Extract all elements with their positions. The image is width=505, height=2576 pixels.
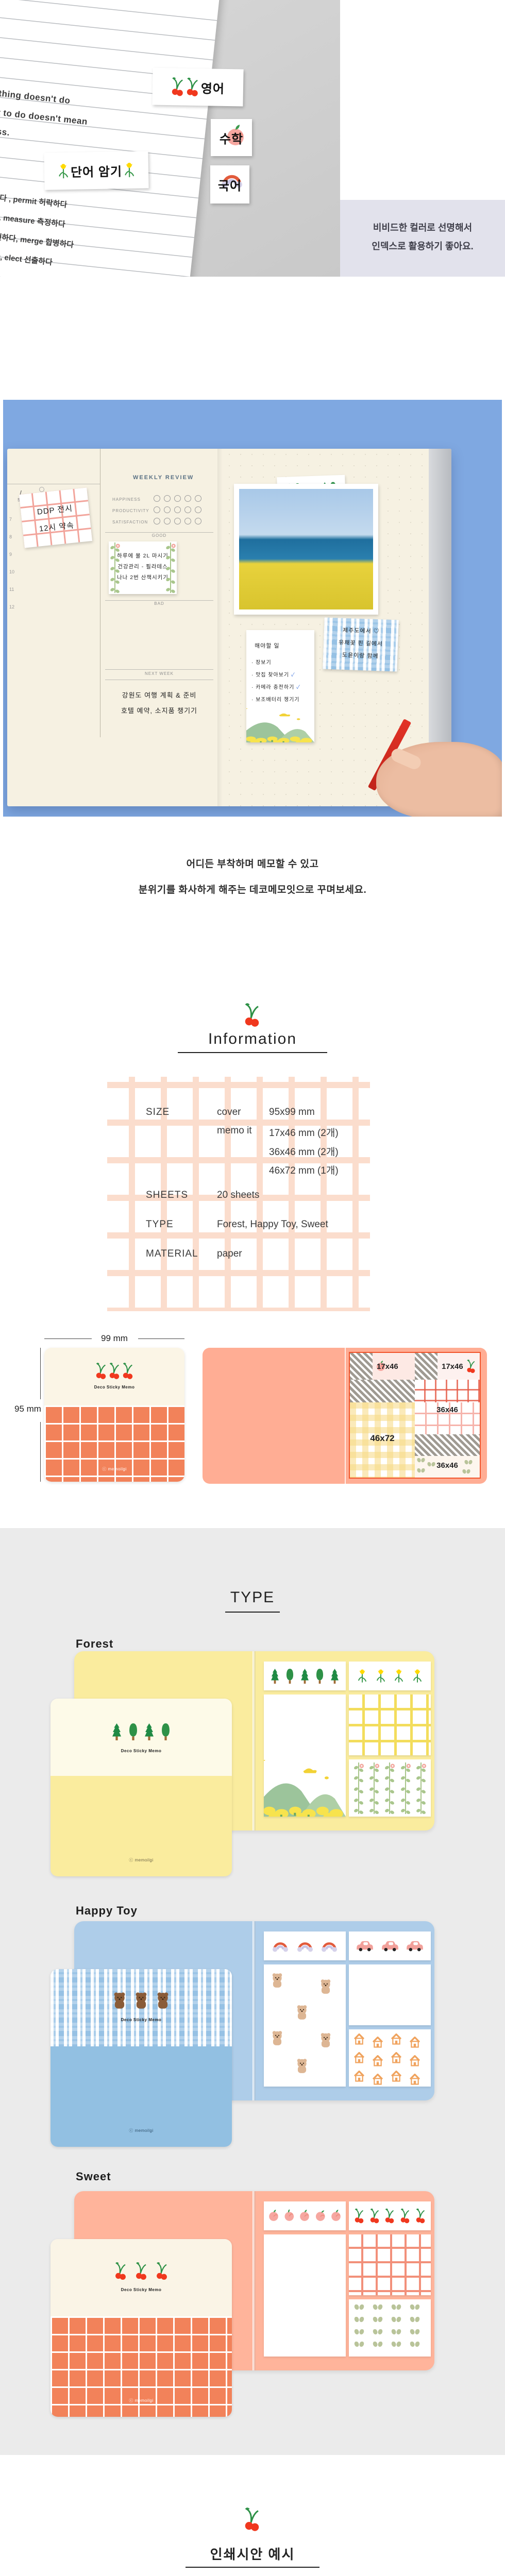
material-value: paper: [217, 1248, 242, 1260]
next-week-plan: 강원도 여행 계획 & 준비호텔 예약, 소지품 챙기기: [95, 688, 224, 719]
mountain-illustration: [264, 1760, 346, 1817]
brand-text: Deco Sticky Memo: [50, 1749, 232, 1753]
bad-label: BAD: [105, 601, 213, 606]
sheets-label: SHEETS: [146, 1190, 188, 1201]
cover-open-inside: 17x46 17x46 46x72 36x46 36x46: [203, 1348, 487, 1484]
pad-size-label: 36x46: [415, 1402, 480, 1414]
sheets-value: 20 sheets: [217, 1190, 259, 1201]
folder-spine: [252, 1921, 256, 2100]
inside-left-panel: [203, 1348, 345, 1484]
brand-text: Deco Sticky Memo: [50, 2287, 232, 2292]
dimension-line: [40, 1348, 41, 1399]
size-label: SIZE: [146, 1107, 170, 1118]
copyright-text: ⓒ memoilgi: [44, 1405, 184, 1472]
type-name-forest: Forest: [76, 1637, 113, 1651]
adhesive-strip: [415, 1353, 437, 1380]
copyright-text: ⓒ memoilgi: [50, 2046, 232, 2133]
cherry-icon: [95, 1362, 107, 1380]
cherry-icon: [466, 1359, 476, 1374]
hero-callout: 비비드한 컬러로 선명해서 인덱스로 활용하기 좋아요.: [340, 200, 505, 277]
forest-pad-vines: [349, 1759, 431, 1817]
happytoy-pad-rainbows: [264, 1931, 346, 1960]
forest-pad-grid: [349, 1694, 431, 1755]
forest-pad-mountain: [264, 1694, 346, 1817]
height-dimension: 95 mm: [14, 1404, 41, 1414]
callout-line: 비비드한 컬러로 선명해서: [340, 218, 505, 237]
folder-spine: [252, 1651, 256, 1831]
todo-item: · 장보기: [251, 657, 314, 669]
metric-label: HAPPINESS: [112, 497, 141, 502]
product-detail-page: e something doesn't do anned it to do do…: [0, 0, 505, 2576]
next-week-label: NEXT WEEK: [105, 671, 213, 676]
row-numbers: 789 101112: [9, 511, 14, 616]
cherry-icon: [171, 77, 184, 96]
adhesive-strip: [350, 1353, 373, 1380]
vocab-list: ention 언급하다 , permit 허락하다 incipal 주요한, m…: [0, 183, 190, 277]
forest-pad-tulips: [349, 1662, 431, 1690]
dimension-line: [138, 1338, 184, 1339]
information-title: Information: [0, 1030, 505, 1048]
adhesive-strip: [350, 1380, 415, 1402]
type-name-happytoy: Happy Toy: [76, 1904, 138, 1918]
forest-pad-trees: [264, 1662, 346, 1690]
folder-spine: [252, 2191, 256, 2370]
divider: [105, 532, 213, 533]
memo-ddp: DDP 전시 12시 약속: [19, 487, 92, 548]
size-cover-key: cover: [217, 1107, 241, 1118]
vine-icon: [110, 543, 120, 593]
intro-line-1: 어디든 부착하며 메모할 수 있고: [0, 856, 505, 870]
vine-icon: [165, 543, 176, 593]
pad-size-label: 17x46: [377, 1362, 398, 1371]
bear-icon: [271, 1973, 283, 1988]
print-sample-title: 인쇄시안 예시: [0, 2544, 505, 2563]
cherry-icon: [243, 2507, 261, 2532]
sweet-pad-cherries: [349, 2201, 431, 2230]
memo-jeju-text: 제주도에서 ♡유채꽃 핀 길에서도윤이랑 함께: [323, 624, 398, 664]
size-cover-value: 95x99 mm: [269, 1107, 315, 1118]
sweet-cover-front: Deco Sticky Memo ⓒ memoilgi: [50, 2239, 232, 2417]
intro-line-2: 분위기를 화사하게 해주는 데코메모잇으로 꾸며보세요.: [0, 882, 505, 896]
index-tab-math: 수학: [211, 119, 252, 156]
index-tab-korean: 국어: [210, 165, 249, 204]
dimension-line: [44, 1338, 92, 1339]
size-memo-value: 17x46 mm (2개): [269, 1125, 339, 1139]
sweet-pad-grid: [349, 2234, 431, 2295]
adhesive-strip-grid: [415, 1380, 480, 1402]
planner-photo: / SUN 789 101112 WEEKLY REVIEW HAPPINESS…: [3, 400, 502, 817]
tab-label-korean: 국어: [218, 176, 242, 194]
cherry-icon: [243, 1003, 261, 1027]
brand-text: Deco Sticky Memo: [44, 1385, 184, 1389]
tulip-icon: [124, 162, 135, 178]
sweet-pad-leaves: [349, 2299, 431, 2357]
pad-size-label: 17x46: [442, 1362, 463, 1371]
divider: [7, 484, 100, 484]
callout-line: 인덱스로 활용하기 좋아요.: [340, 237, 505, 256]
mountain-illustration: [246, 708, 314, 742]
happytoy-pad-houses: [349, 2029, 431, 2087]
sweet-pad-gingham: [264, 2234, 346, 2357]
adhesive-strip: [415, 1434, 480, 1456]
cherry-icon: [122, 1362, 133, 1380]
width-dimension: 99 mm: [101, 1333, 128, 1344]
size-memo-value: 36x46 mm (2개): [269, 1144, 339, 1158]
pad-size-label: 46x72: [350, 1402, 415, 1444]
cover-closed-front: Deco Sticky Memo ⓒ memoilgi: [44, 1348, 184, 1482]
pad-36x46-leaves: 36x46: [415, 1456, 480, 1478]
pad-36x46-grid: 36x46: [415, 1402, 480, 1434]
forest-cover-front: Deco Sticky Memo ⓒ memoilgi: [50, 1699, 232, 1876]
type-label: TYPE: [146, 1219, 174, 1230]
hand-with-pen: [345, 721, 502, 817]
index-tab-english: 영어: [152, 67, 243, 106]
copyright-text: ⓒ memoilgi: [50, 2316, 232, 2403]
memo-jeju: 제주도에서 ♡유채꽃 핀 길에서도윤이랑 함께: [323, 618, 398, 672]
todo-title: 해야할 일: [255, 641, 314, 650]
happytoy-pad-plaid: [349, 1964, 431, 2025]
dimension-line: [40, 1422, 41, 1482]
todo-item: · 맛집 찾아보기 ✓: [251, 669, 314, 682]
type-title: TYPE: [0, 1589, 505, 1606]
tab-label-math: 수학: [220, 129, 243, 147]
pad-46x72-gingham: 46x72: [350, 1402, 415, 1478]
sweet-pad-peaches: [264, 2201, 346, 2230]
weekly-review-title: WEEKLY REVIEW: [133, 474, 194, 481]
todo-item: · 보조배터리 챙기기: [251, 694, 314, 706]
divider: [105, 680, 213, 680]
todo-list: · 장보기 · 맛집 찾아보기 ✓ · 카메라 충전하기 ✓ · 보조배터리 챙…: [251, 657, 314, 706]
type-name-sweet: Sweet: [76, 2170, 111, 2183]
good-label: GOOD: [105, 533, 213, 538]
material-label: MATERIAL: [146, 1248, 198, 1260]
cherry-icon: [109, 1362, 120, 1380]
metric-circles: [154, 518, 205, 527]
metric-label: PRODUCTIVITY: [112, 509, 149, 513]
planner-spine: [217, 449, 223, 806]
divider: [105, 600, 213, 601]
index-tab-vocab: 단어 암기: [44, 151, 148, 190]
sea-photo: [234, 484, 378, 615]
hero-photo: e something doesn't do anned it to do do…: [0, 0, 340, 277]
leaf-icon: [462, 1469, 470, 1474]
check-icon: ✓: [296, 685, 300, 690]
memo-layout-panel: 17x46 17x46 46x72 36x46 36x46: [349, 1352, 481, 1479]
title-underline: [186, 2567, 319, 2568]
cherry-icon: [186, 77, 199, 97]
tab-label-english: 영어: [201, 78, 225, 97]
happytoy-cover-front: Deco Sticky Memo ⓒ memoilgi: [50, 1969, 232, 2147]
size-memo-key: memo it: [217, 1125, 252, 1137]
tulip-icon: [58, 163, 69, 179]
size-memo-value: 46x72 mm (1개): [269, 1163, 339, 1177]
tab-label-vocab: 단어 암기: [71, 161, 123, 180]
happytoy-pad-cars: [349, 1931, 431, 1960]
pad-size-label: 36x46: [415, 1456, 480, 1470]
fold-line: [345, 1348, 346, 1484]
divider: [105, 669, 213, 670]
happytoy-pad-bears: [264, 1964, 346, 2087]
todo-item: · 카메라 충전하기 ✓: [251, 682, 314, 694]
metric-label: SATISFACTION: [112, 520, 148, 524]
check-icon: ✓: [291, 672, 295, 678]
circle-marker: [39, 487, 44, 492]
copyright-text: ⓒ memoilgi: [50, 1776, 232, 1863]
memo-todo: 해야할 일 · 장보기 · 맛집 찾아보기 ✓ · 카메라 충전하기 ✓ · 보…: [246, 630, 314, 742]
title-underline: [225, 1612, 280, 1613]
type-section: TYPE Forest: [0, 1528, 505, 2455]
memo-health: 하루에 물 2L 마시기건강관리 - 필라테스나나 2번 산책시키기: [109, 541, 177, 594]
metric-circles: [154, 495, 205, 504]
type-value: Forest, Happy Toy, Sweet: [217, 1219, 328, 1230]
brand-text: Deco Sticky Memo: [50, 2018, 232, 2022]
notebook-page: e something doesn't do anned it to do do…: [0, 0, 220, 277]
metric-circles: [154, 506, 205, 516]
title-underline: [178, 1052, 327, 1053]
sea-photo-image: [239, 489, 373, 609]
